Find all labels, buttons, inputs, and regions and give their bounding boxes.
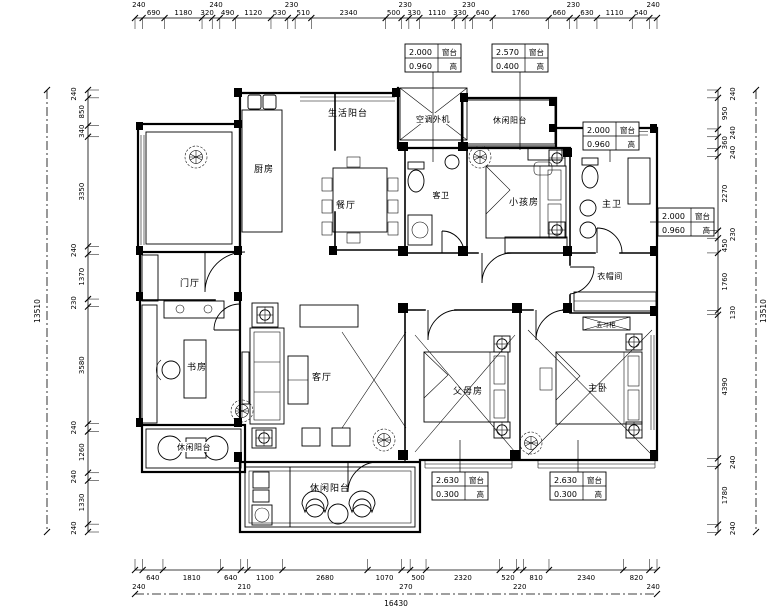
room-label-study: 书房 bbox=[187, 361, 207, 373]
doors bbox=[205, 228, 622, 492]
room-label-chest: 五斗柜 bbox=[596, 320, 616, 329]
room-label-guest-bath: 客卫 bbox=[433, 190, 450, 200]
dim-value: 240 bbox=[729, 126, 737, 139]
dim-value: 240 bbox=[729, 87, 737, 100]
dimension-chain-right: 2409502403602402270230450176013043902401… bbox=[707, 87, 737, 535]
room-label-kitchen: 厨房 bbox=[254, 163, 274, 175]
dim-value: 220 bbox=[513, 583, 526, 591]
dim-value: 240 bbox=[70, 87, 78, 100]
dim-value: 240 bbox=[729, 456, 737, 469]
sill-annotation-boxes: 2.0000.960窗台高2.5700.400窗台高2.0000.960窗台高2… bbox=[405, 44, 714, 500]
room-label-living: 客厅 bbox=[312, 371, 332, 383]
dim-value: 2320 bbox=[454, 574, 472, 582]
dim-value: 1760 bbox=[512, 9, 530, 17]
dim-value: 16430 bbox=[384, 599, 408, 608]
kitchen-fixtures bbox=[242, 95, 282, 232]
bottom-balcony bbox=[240, 462, 420, 532]
dim-value: 330 bbox=[407, 9, 420, 17]
dim-value: 13510 bbox=[33, 299, 42, 323]
dim-value: 820 bbox=[630, 574, 643, 582]
dim-value: 1810 bbox=[183, 574, 201, 582]
dim-value: 240 bbox=[70, 421, 78, 434]
dim-value: 360 bbox=[721, 136, 729, 149]
dim-value: 240 bbox=[70, 244, 78, 257]
sill-height-label: 高 bbox=[628, 139, 636, 149]
dim-value: 230 bbox=[462, 1, 475, 9]
room-label-bottom-balcony: 休闲阳台 bbox=[310, 482, 350, 494]
dim-value: 490 bbox=[221, 9, 234, 17]
sill-value-bottom: 0.300 bbox=[436, 490, 459, 499]
dim-value: 1760 bbox=[721, 273, 729, 291]
dim-value: 1330 bbox=[78, 493, 86, 511]
room-label-foyer: 门厅 bbox=[180, 277, 200, 289]
dim-value: 1110 bbox=[606, 9, 624, 17]
dim-value: 1120 bbox=[244, 9, 262, 17]
dim-value: 640 bbox=[476, 9, 489, 17]
dim-value: 130 bbox=[729, 306, 737, 319]
building-structure bbox=[136, 88, 657, 532]
room-label-master-bath: 主卫 bbox=[602, 198, 622, 210]
dim-tick bbox=[654, 591, 660, 597]
sill-label: 窗台 bbox=[695, 211, 710, 221]
dim-value: 690 bbox=[147, 9, 160, 17]
service-balcony-window bbox=[300, 93, 395, 101]
sill-value-bottom: 0.960 bbox=[409, 62, 432, 71]
room-label-left-balcony: 休闲阳台 bbox=[177, 442, 211, 452]
dim-value: 810 bbox=[529, 574, 542, 582]
room-label-dining: 餐厅 bbox=[336, 199, 356, 211]
dim-value: 950 bbox=[721, 107, 729, 120]
dim-value: 510 bbox=[297, 9, 310, 17]
sill-label: 窗台 bbox=[469, 475, 484, 485]
dim-value: 330 bbox=[453, 9, 466, 17]
dim-value: 240 bbox=[646, 1, 659, 9]
dim-value: 4390 bbox=[721, 378, 729, 396]
dim-value: 240 bbox=[646, 583, 659, 591]
sill-value-bottom: 0.300 bbox=[554, 490, 577, 499]
dim-value: 240 bbox=[70, 470, 78, 483]
dim-value: 2680 bbox=[316, 574, 334, 582]
dim-value: 1180 bbox=[174, 9, 192, 17]
dim-value: 1370 bbox=[78, 268, 86, 286]
dim-value: 530 bbox=[273, 9, 286, 17]
sill-value-bottom: 0.960 bbox=[662, 226, 685, 235]
dim-value: 230 bbox=[567, 1, 580, 9]
floor-plan-canvas: 生活阳台 厨房 餐厅 空调外机 休闲阳台 客卫 小孩房 主卫 衣帽间 门厅 书房… bbox=[0, 0, 780, 614]
master-bath-fixtures bbox=[580, 158, 650, 238]
dim-value: 500 bbox=[411, 574, 424, 582]
dim-value: 1780 bbox=[721, 486, 729, 504]
dining-set bbox=[322, 157, 398, 243]
dim-value: 2270 bbox=[721, 185, 729, 203]
sill-value-top: 2.630 bbox=[436, 476, 459, 485]
dim-tick bbox=[44, 529, 50, 535]
dim-value: 1070 bbox=[376, 574, 394, 582]
cloakroom-wardrobe bbox=[574, 292, 656, 311]
dim-value: 3580 bbox=[78, 356, 86, 374]
dim-value: 270 bbox=[399, 583, 412, 591]
dim-value: 660 bbox=[552, 9, 565, 17]
sill-height-label: 高 bbox=[595, 489, 603, 499]
sill-value-top: 2.630 bbox=[554, 476, 577, 485]
room-label-top-balcony: 休闲阳台 bbox=[493, 115, 527, 125]
dim-value: 450 bbox=[721, 239, 729, 252]
sill-label: 窗台 bbox=[529, 47, 544, 57]
sill-value-top: 2.000 bbox=[587, 126, 610, 135]
guest-bath-fixtures bbox=[408, 155, 459, 245]
room-label-kids-room: 小孩房 bbox=[509, 196, 539, 208]
sill-height-label: 高 bbox=[537, 61, 545, 71]
parents-bay-window bbox=[425, 460, 512, 468]
sill-value-bottom: 0.400 bbox=[496, 62, 519, 71]
dim-value: 540 bbox=[634, 9, 647, 17]
dim-value: 230 bbox=[70, 296, 78, 309]
dim-value: 240 bbox=[729, 146, 737, 159]
dimension-chain-bottom: 2406401810640210110026801070270500232052… bbox=[132, 559, 660, 591]
dim-value: 850 bbox=[78, 105, 86, 118]
sill-label: 窗台 bbox=[442, 47, 457, 57]
sill-height-label: 高 bbox=[703, 225, 711, 235]
sill-label: 窗台 bbox=[620, 125, 635, 135]
entry-porch bbox=[138, 124, 240, 252]
sill-height-label: 高 bbox=[450, 61, 458, 71]
dim-value: 240 bbox=[132, 1, 145, 9]
bottom-balcony-furniture bbox=[252, 472, 375, 525]
dim-value: 210 bbox=[237, 583, 250, 591]
dim-value: 240 bbox=[209, 1, 222, 9]
dim-value: 2340 bbox=[577, 574, 595, 582]
dim-value: 640 bbox=[146, 574, 159, 582]
dimension-chain-left: 2408503403350240137023035802401260240133… bbox=[70, 87, 99, 535]
dim-value: 500 bbox=[387, 9, 400, 17]
sill-height-label: 高 bbox=[477, 489, 485, 499]
sill-value-top: 2.000 bbox=[662, 212, 685, 221]
dim-tick bbox=[753, 529, 759, 535]
sill-value-bottom: 0.960 bbox=[587, 140, 610, 149]
dim-value: 3350 bbox=[78, 183, 86, 201]
room-label-service-balcony: 生活阳台 bbox=[328, 107, 368, 119]
dim-value: 520 bbox=[501, 574, 514, 582]
dim-value: 230 bbox=[729, 228, 737, 241]
sill-value-top: 2.570 bbox=[496, 48, 519, 57]
dim-value: 2340 bbox=[340, 9, 358, 17]
dim-value: 1260 bbox=[78, 443, 86, 461]
sill-label: 窗台 bbox=[587, 475, 602, 485]
dim-value: 230 bbox=[399, 1, 412, 9]
dimension-chain-top: 2406901180320240490112053023051023405002… bbox=[132, 1, 660, 29]
dim-value: 320 bbox=[200, 9, 213, 17]
dim-value: 630 bbox=[580, 9, 593, 17]
dim-value: 13510 bbox=[759, 299, 768, 323]
room-label-parents-room: 父母房 bbox=[453, 385, 483, 397]
dim-value: 240 bbox=[132, 583, 145, 591]
dim-value: 240 bbox=[70, 521, 78, 534]
dim-value: 1110 bbox=[428, 9, 446, 17]
structural-columns bbox=[136, 88, 657, 462]
dim-value: 640 bbox=[224, 574, 237, 582]
sill-value-top: 2.000 bbox=[409, 48, 432, 57]
master-bay-window bbox=[538, 460, 655, 468]
dim-value: 340 bbox=[78, 125, 86, 138]
dim-value: 1100 bbox=[256, 574, 274, 582]
dim-value: 240 bbox=[729, 522, 737, 535]
room-label-cloakroom: 衣帽间 bbox=[597, 271, 623, 281]
room-label-master-bedroom: 主卧 bbox=[588, 382, 608, 394]
dim-value: 230 bbox=[285, 1, 298, 9]
